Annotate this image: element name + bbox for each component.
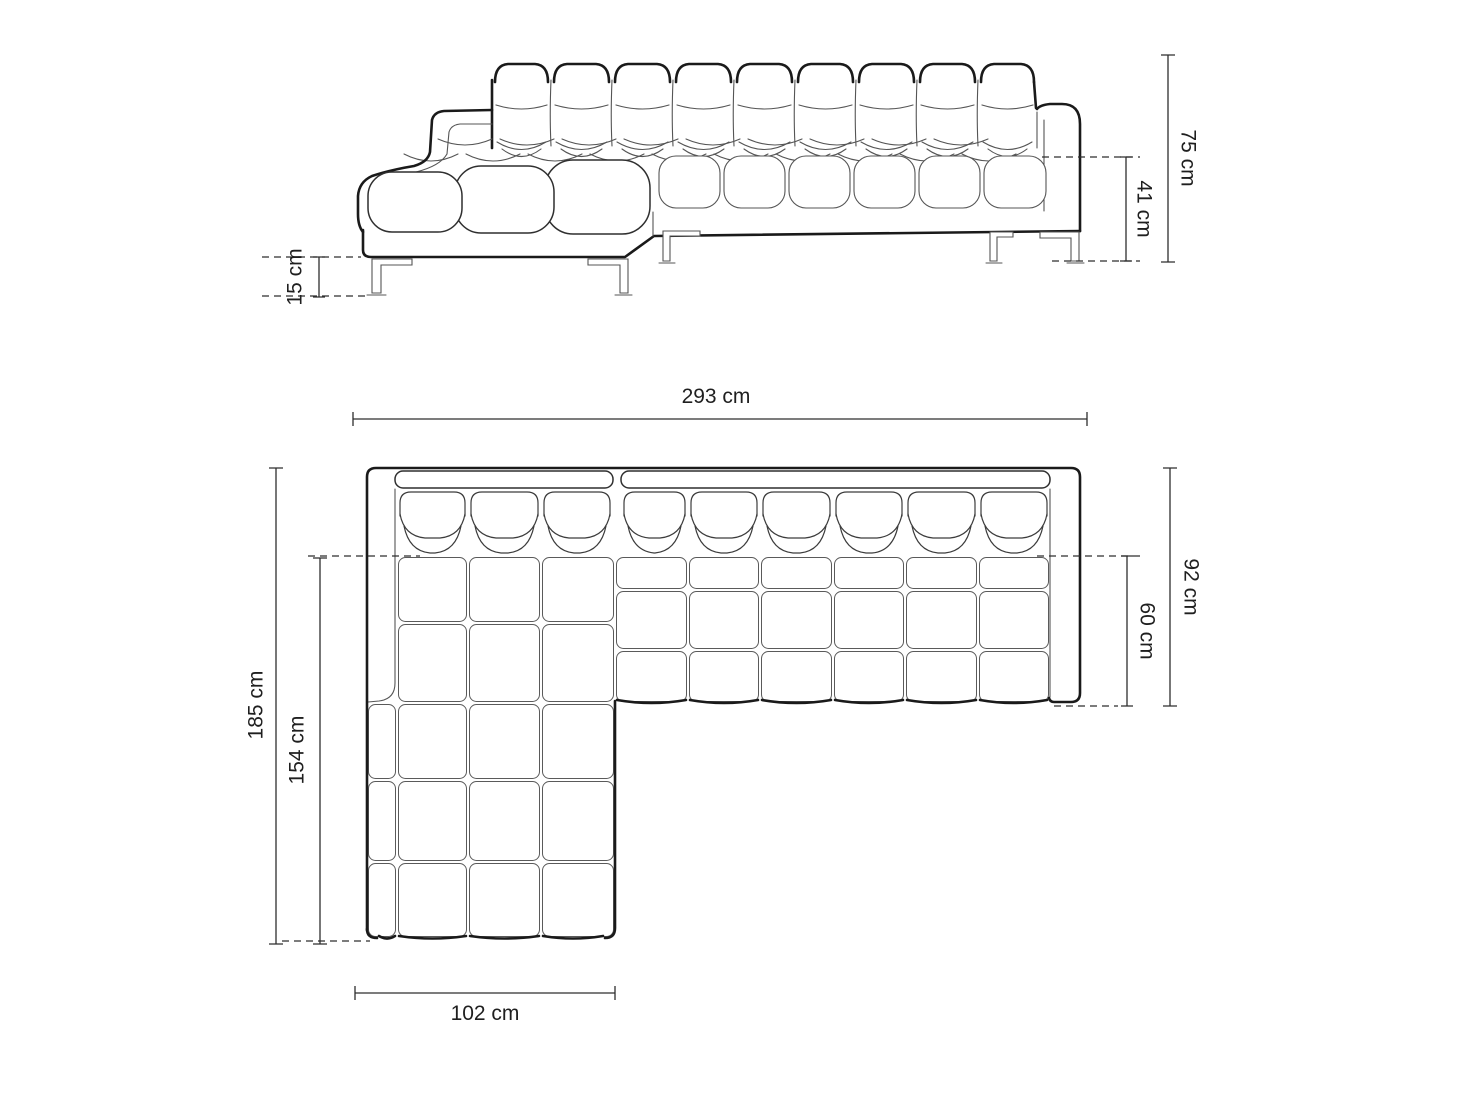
dim-label-leg-height: 15 cm	[284, 248, 307, 305]
back-tuft-line	[738, 105, 791, 109]
sofa-dimension-diagram: 75 cm 41 cm 15 cm 293 cm 92 cm 60 cm 185…	[0, 0, 1459, 1094]
plan-seat-cell	[369, 782, 396, 861]
base-outline	[363, 230, 1080, 257]
seat-cushion-front	[724, 156, 785, 208]
back-cushion-bottom-echo	[622, 149, 663, 157]
back-cushion-bottom-echo	[502, 149, 541, 157]
plan-back-cushion-front	[548, 526, 606, 553]
back-cushion-bottom	[556, 142, 607, 150]
back-right-leg	[1040, 232, 1079, 261]
plan-back-cushion	[471, 492, 538, 516]
total-depth-dim-line	[1163, 468, 1177, 706]
plan-seat-cell	[470, 782, 540, 861]
plan-seat-cell	[835, 558, 904, 589]
back-cushion-bottom	[800, 142, 851, 150]
plan-back-cushion	[981, 492, 1047, 516]
dim-label-seat-depth: 60 cm	[1135, 602, 1158, 659]
plan-back-cushion-front	[985, 526, 1043, 553]
back-tuft-line	[860, 105, 913, 109]
plan-seat-cell	[470, 705, 540, 779]
back-cushion-top	[798, 64, 853, 82]
plan-view	[367, 468, 1080, 939]
back-cushion-bottom	[617, 142, 668, 150]
plan-seat-cell	[369, 705, 396, 779]
plan-backrest-rail-right	[621, 471, 1050, 488]
plan-back-cushion	[400, 492, 465, 516]
back-middle-leg	[990, 232, 1013, 261]
chaise-cushion-1	[368, 172, 462, 232]
back-tuft-line	[496, 105, 547, 109]
plan-seat-grid	[369, 558, 1049, 937]
plan-back-cushion-scallop	[763, 514, 830, 538]
plan-back-cushion-front	[628, 526, 681, 553]
plan-back-cushion-scallop	[691, 514, 757, 538]
tuft-arc-back-row	[562, 139, 616, 145]
plan-seat-cell	[762, 592, 832, 649]
plan-front-edges	[379, 700, 1047, 939]
dim-label-total-width: 293 cm	[682, 385, 751, 408]
total-height-dim-line	[1161, 55, 1175, 262]
plan-left-armrest-inner	[368, 489, 395, 702]
back-cushion-bottom	[861, 142, 912, 150]
plan-seat-cell	[369, 864, 396, 937]
plan-back-cushion-scallop	[908, 514, 975, 538]
front-view	[358, 64, 1084, 295]
plan-seat-cell	[835, 652, 904, 702]
back-cushion-separator	[611, 80, 612, 146]
back-tuft-line	[555, 105, 608, 109]
back-tuft-line	[677, 105, 730, 109]
plan-back-cushions	[400, 492, 1047, 553]
plan-back-cushion	[544, 492, 610, 516]
tuft-arc-back-row	[686, 139, 740, 145]
left-armrest-inner-line	[447, 124, 492, 154]
back-cushion-bottom-echo	[561, 149, 602, 157]
chaise-length-dim-line	[313, 558, 327, 944]
seat-cushion-front	[984, 156, 1046, 208]
back-cushion-separator	[672, 80, 673, 146]
chaise-cushion-3	[545, 160, 650, 234]
back-cushion-separator	[855, 80, 856, 146]
plan-seat-cell	[762, 558, 832, 589]
back-cushion-separator	[794, 80, 795, 146]
plan-seat-cell	[399, 625, 467, 702]
plan-seat-cell	[980, 558, 1049, 589]
plan-outer-boundary	[367, 468, 1080, 930]
plan-seat-cell	[907, 558, 977, 589]
back-cushion-top	[615, 64, 670, 82]
plan-seat-cell	[690, 652, 759, 702]
plan-seat-cell	[690, 592, 759, 649]
plan-seat-cell	[690, 558, 759, 589]
tuft-arc-back-row	[934, 139, 988, 145]
chaise-cushion-2	[455, 166, 554, 233]
back-cushion-top	[859, 64, 914, 82]
plan-back-cushion-scallop	[624, 514, 685, 538]
plan-seat-cell	[543, 625, 614, 702]
front-left-leg	[372, 259, 412, 293]
back-tuft-line	[616, 105, 669, 109]
plan-back-cushion-front	[695, 526, 753, 553]
plan-seat-cell	[543, 705, 614, 779]
back-cushion-separator	[977, 80, 978, 146]
back-cushion-bottom	[983, 142, 1032, 150]
plan-seat-cell	[835, 592, 904, 649]
plan-seat-cell	[399, 705, 467, 779]
front-middle-leg	[588, 259, 628, 293]
back-cushion-bottom-echo	[927, 149, 968, 157]
back-cushion-separator	[733, 80, 734, 146]
plan-seat-cell	[617, 592, 687, 649]
back-cushion-bottom-echo	[866, 149, 907, 157]
plan-seat-cell	[617, 558, 687, 589]
tuft-arc-back-row	[748, 139, 802, 145]
plan-back-cushion-front	[840, 526, 898, 553]
dim-label-total-length: 185 cm	[245, 671, 268, 740]
plan-seat-cell	[470, 625, 540, 702]
back-tuft-line	[982, 105, 1033, 109]
plan-seat-cell	[543, 558, 614, 622]
leg-height-dim-line	[313, 257, 325, 297]
total-width-dim-line	[353, 412, 1087, 426]
tuft-arc-back-row	[438, 139, 492, 145]
plan-backrest-rail-left	[395, 471, 613, 488]
plan-back-cushion	[763, 492, 830, 516]
back-cushion-bottom-echo	[988, 149, 1027, 157]
plan-back-cushion	[691, 492, 757, 516]
plan-seat-cell	[399, 864, 467, 937]
plan-back-cushion-front	[912, 526, 971, 553]
tuft-arc-back-row	[500, 139, 554, 145]
seat-cushion-front	[919, 156, 980, 208]
chaise-width-dim-line	[355, 986, 615, 1000]
back-cushion-top	[981, 64, 1034, 82]
tuft-arc-back-row	[624, 139, 678, 145]
tuft-arc-front-row	[404, 154, 458, 161]
dim-label-total-depth: 92 cm	[1179, 558, 1202, 615]
back-cushion-top	[920, 64, 975, 82]
diagram-canvas: 75 cm 41 cm 15 cm 293 cm 92 cm 60 cm 185…	[0, 0, 1459, 1094]
plan-back-cushion	[624, 492, 685, 516]
plan-back-cushion	[836, 492, 902, 516]
seat-cushion-front	[789, 156, 850, 208]
plan-seat-cell	[543, 864, 614, 937]
dim-label-chaise-length: 154 cm	[286, 716, 309, 785]
dim-label-total-height: 75 cm	[1176, 129, 1199, 186]
back-cushion-separator	[916, 80, 917, 146]
plan-back-cushion-scallop	[400, 514, 465, 538]
dim-label-chaise-width: 102 cm	[451, 1002, 520, 1025]
plan-back-cushion-scallop	[836, 514, 902, 538]
plan-seat-cell	[980, 652, 1049, 702]
back-cushion-bottom	[739, 142, 790, 150]
dim-label-seat-height: 41 cm	[1132, 180, 1155, 237]
plan-seat-cell	[470, 864, 540, 937]
back-cushion-bottom	[678, 142, 729, 150]
plan-seat-cell	[907, 592, 977, 649]
plan-seat-cell	[399, 782, 467, 861]
plan-back-cushion-front	[404, 526, 461, 553]
plan-back-cushion-scallop	[544, 514, 610, 538]
total-length-dim-line	[269, 468, 283, 944]
tuft-arc-back-row	[872, 139, 926, 145]
plan-back-cushion-scallop	[981, 514, 1047, 538]
back-cushion-top	[737, 64, 792, 82]
plan-back-cushion	[908, 492, 975, 516]
plan-seat-cell	[470, 558, 540, 622]
plan-back-cushion-front	[767, 526, 826, 553]
seat-cushion-front	[659, 156, 720, 208]
plan-back-cushion-scallop	[471, 514, 538, 538]
seat-height-dim-line	[1120, 157, 1132, 261]
back-cushion-bottom	[497, 142, 546, 150]
seat-depth-dim-line	[1121, 556, 1133, 706]
back-tuft-line	[799, 105, 852, 109]
back-cushion-top	[495, 64, 548, 82]
plan-seat-cell	[399, 558, 467, 622]
plan-seat-cell	[543, 782, 614, 861]
back-cushion-separator	[550, 80, 551, 146]
plan-seat-cell	[980, 592, 1049, 649]
plan-seat-cell	[907, 652, 977, 702]
back-cushion-top	[554, 64, 609, 82]
seat-cushions	[659, 156, 1046, 208]
plan-seat-cell	[617, 652, 687, 702]
plan-back-cushion-front	[475, 526, 534, 553]
plan-seat-cell	[762, 652, 832, 702]
back-tuft-line	[921, 105, 974, 109]
back-right-corner	[1034, 82, 1036, 108]
back-left-leg	[663, 231, 700, 261]
seat-cushion-front	[854, 156, 915, 208]
back-cushion-top	[676, 64, 731, 82]
